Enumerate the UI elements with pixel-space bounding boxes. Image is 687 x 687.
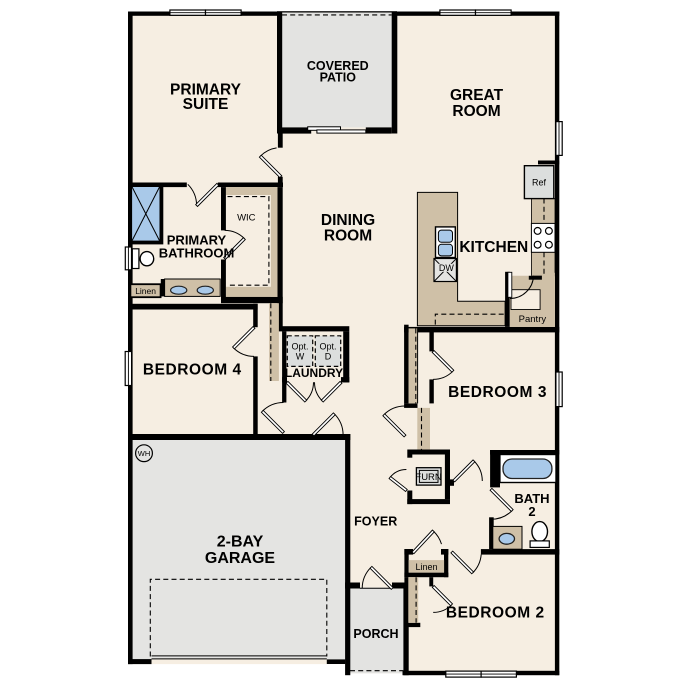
svg-text:WH: WH xyxy=(138,449,151,458)
svg-text:SUITE: SUITE xyxy=(183,96,229,113)
svg-text:2: 2 xyxy=(528,504,535,519)
svg-text:ROOM: ROOM xyxy=(452,103,500,120)
svg-text:Ref: Ref xyxy=(532,177,547,187)
svg-text:Opt.: Opt. xyxy=(291,342,308,352)
svg-text:DW: DW xyxy=(439,263,454,273)
svg-text:BEDROOM 2: BEDROOM 2 xyxy=(446,605,545,622)
svg-text:GREAT: GREAT xyxy=(450,87,504,104)
svg-text:WIC: WIC xyxy=(237,213,256,224)
svg-text:BEDROOM 4: BEDROOM 4 xyxy=(143,362,242,379)
svg-text:PORCH: PORCH xyxy=(353,627,398,641)
svg-text:Pantry: Pantry xyxy=(519,314,547,325)
svg-text:W: W xyxy=(296,352,305,362)
svg-text:DINING: DINING xyxy=(321,212,375,229)
svg-text:KITCHEN: KITCHEN xyxy=(459,239,528,256)
svg-text:FOYER: FOYER xyxy=(354,515,397,529)
svg-text:ROOM: ROOM xyxy=(324,228,372,245)
svg-text:Opt.: Opt. xyxy=(319,342,336,352)
svg-text:Linen: Linen xyxy=(135,286,156,296)
svg-text:PATIO: PATIO xyxy=(320,71,357,85)
svg-text:LAUNDRY: LAUNDRY xyxy=(285,366,343,380)
svg-text:Linen: Linen xyxy=(415,562,437,572)
svg-text:BATHROOM: BATHROOM xyxy=(159,245,235,260)
svg-text:D: D xyxy=(325,352,332,362)
svg-text:GARAGE: GARAGE xyxy=(205,550,276,567)
svg-text:BEDROOM 3: BEDROOM 3 xyxy=(448,384,547,401)
svg-text:FURN: FURN xyxy=(415,472,442,483)
svg-text:2-BAY: 2-BAY xyxy=(217,534,264,551)
